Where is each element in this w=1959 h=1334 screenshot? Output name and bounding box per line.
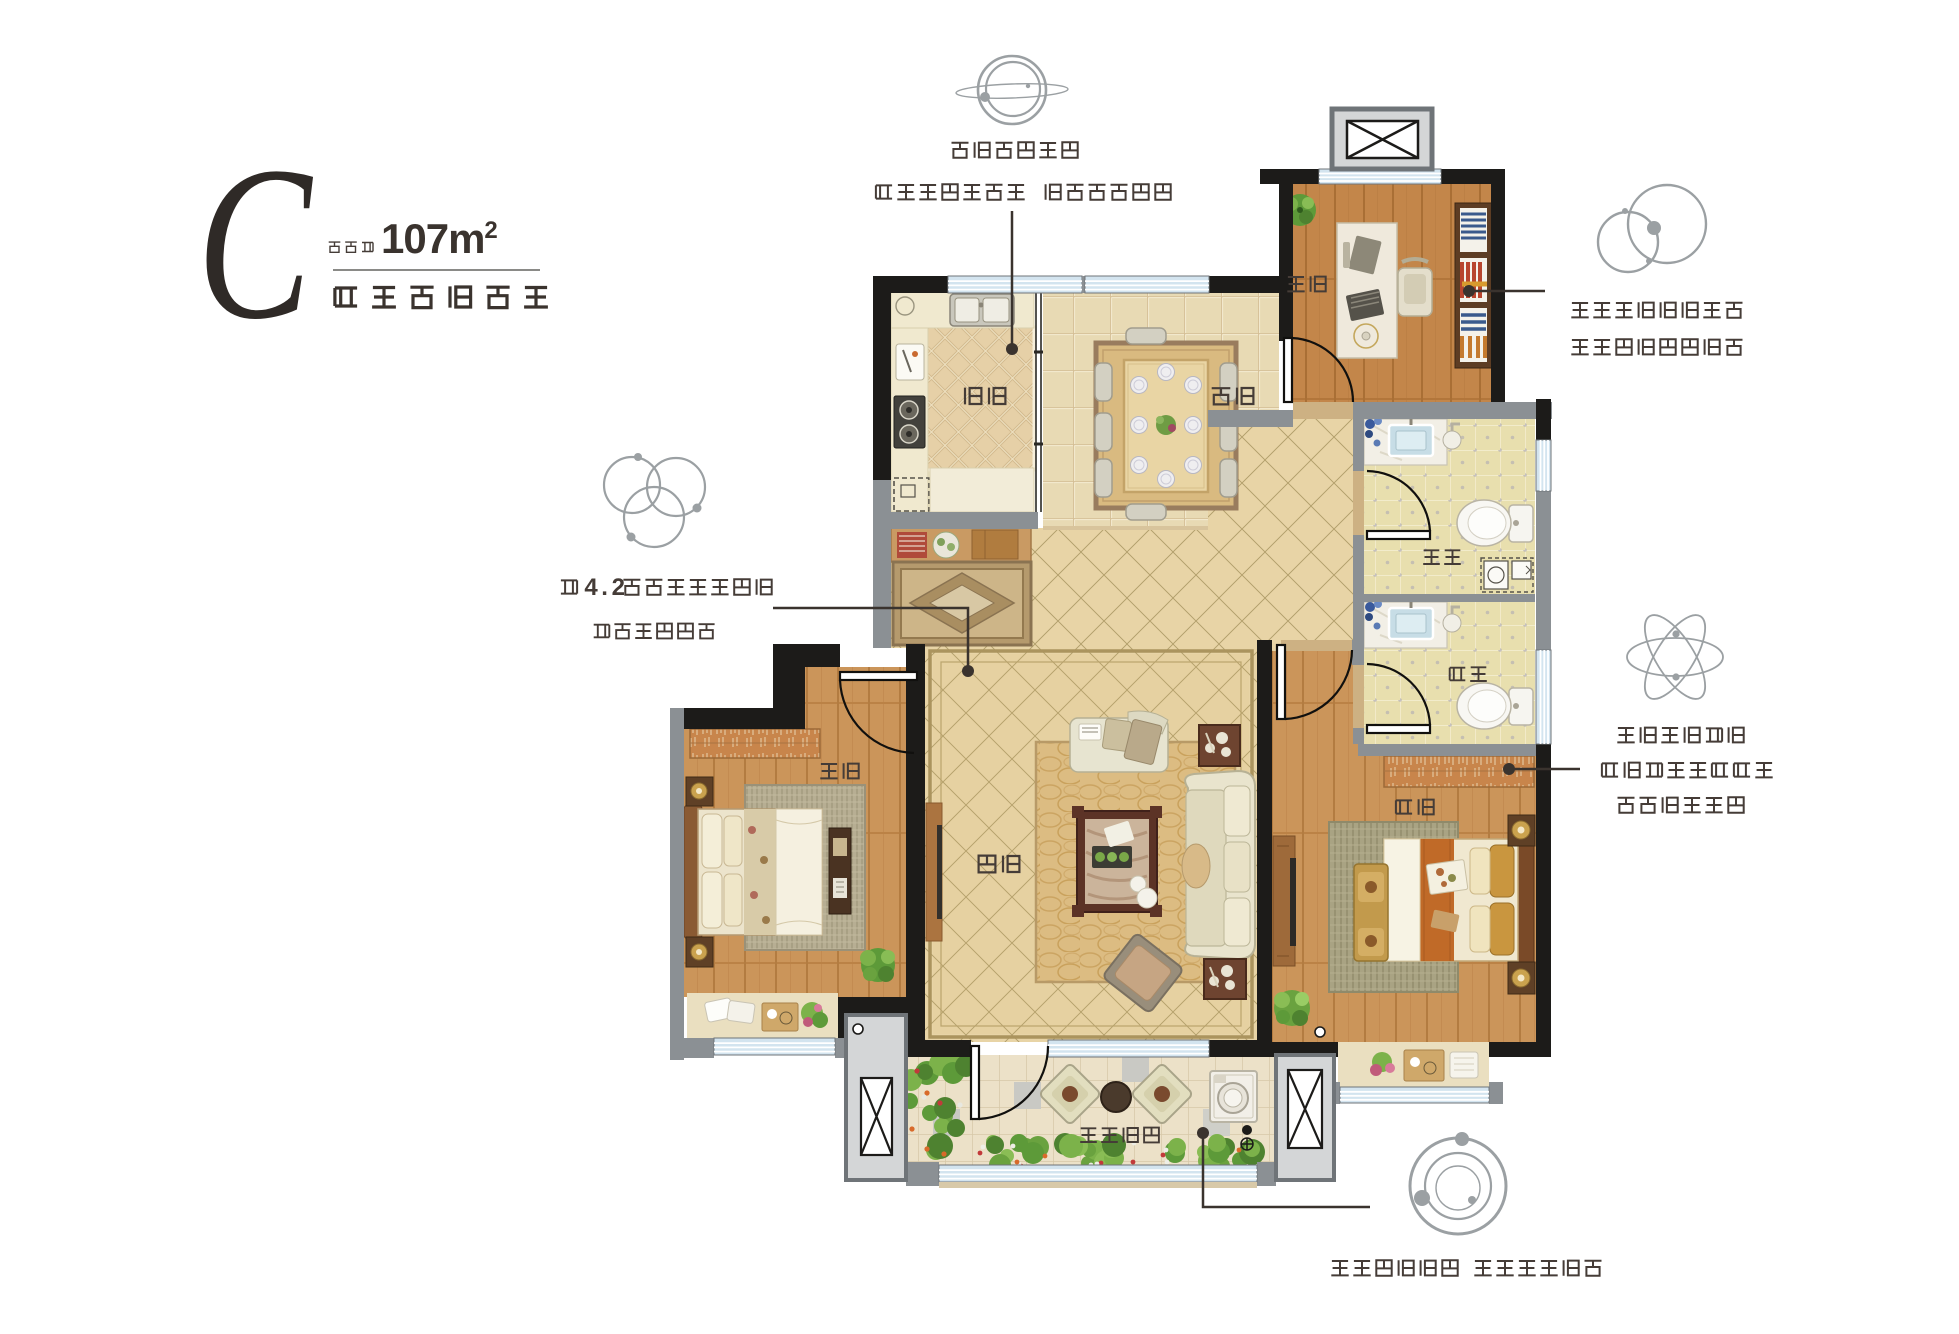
svg-text:107m2: 107m2 bbox=[381, 215, 497, 262]
svg-text:C: C bbox=[197, 121, 314, 365]
svg-text:4: 4 bbox=[584, 574, 598, 601]
svg-text:.: . bbox=[601, 574, 608, 601]
svg-text:2: 2 bbox=[612, 574, 625, 601]
